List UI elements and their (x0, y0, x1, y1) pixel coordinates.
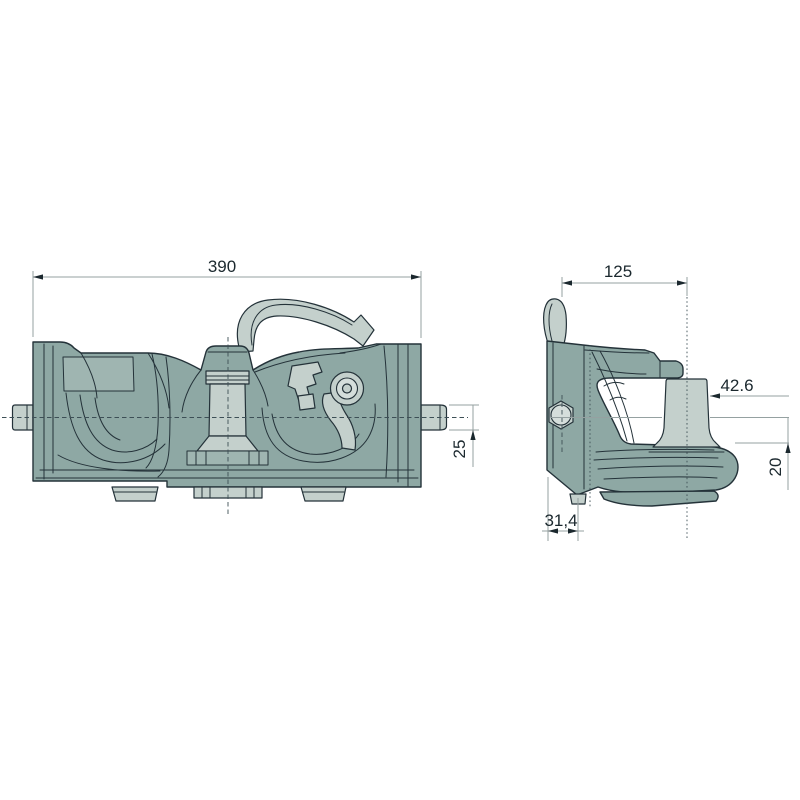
side-bottom-skirt (600, 491, 718, 506)
dimension-390-label: 390 (208, 257, 236, 276)
front-view (2, 299, 468, 516)
left-shaft (13, 405, 34, 430)
side-view (544, 297, 738, 540)
dimension-42-6-label: 42.6 (720, 376, 753, 395)
drawing-canvas: 390 125 42.6 25 20 31,4 (0, 0, 800, 800)
coupling-pin (649, 379, 724, 452)
technical-drawing: 390 125 42.6 25 20 31,4 (0, 0, 800, 800)
left-foot (112, 487, 158, 501)
right-foot (301, 487, 346, 501)
dimension-125-label: 125 (604, 262, 632, 281)
lever-blade (544, 299, 567, 347)
dimension-125: 125 (562, 262, 687, 297)
dimension-31-4-label: 31,4 (544, 511, 577, 530)
left-panel (63, 357, 134, 391)
dimension-25: 25 (449, 405, 479, 467)
dimension-20-label: 20 (766, 458, 785, 477)
dimension-25-label: 25 (450, 440, 469, 459)
dimension-42-6: 42.6 (710, 376, 789, 399)
